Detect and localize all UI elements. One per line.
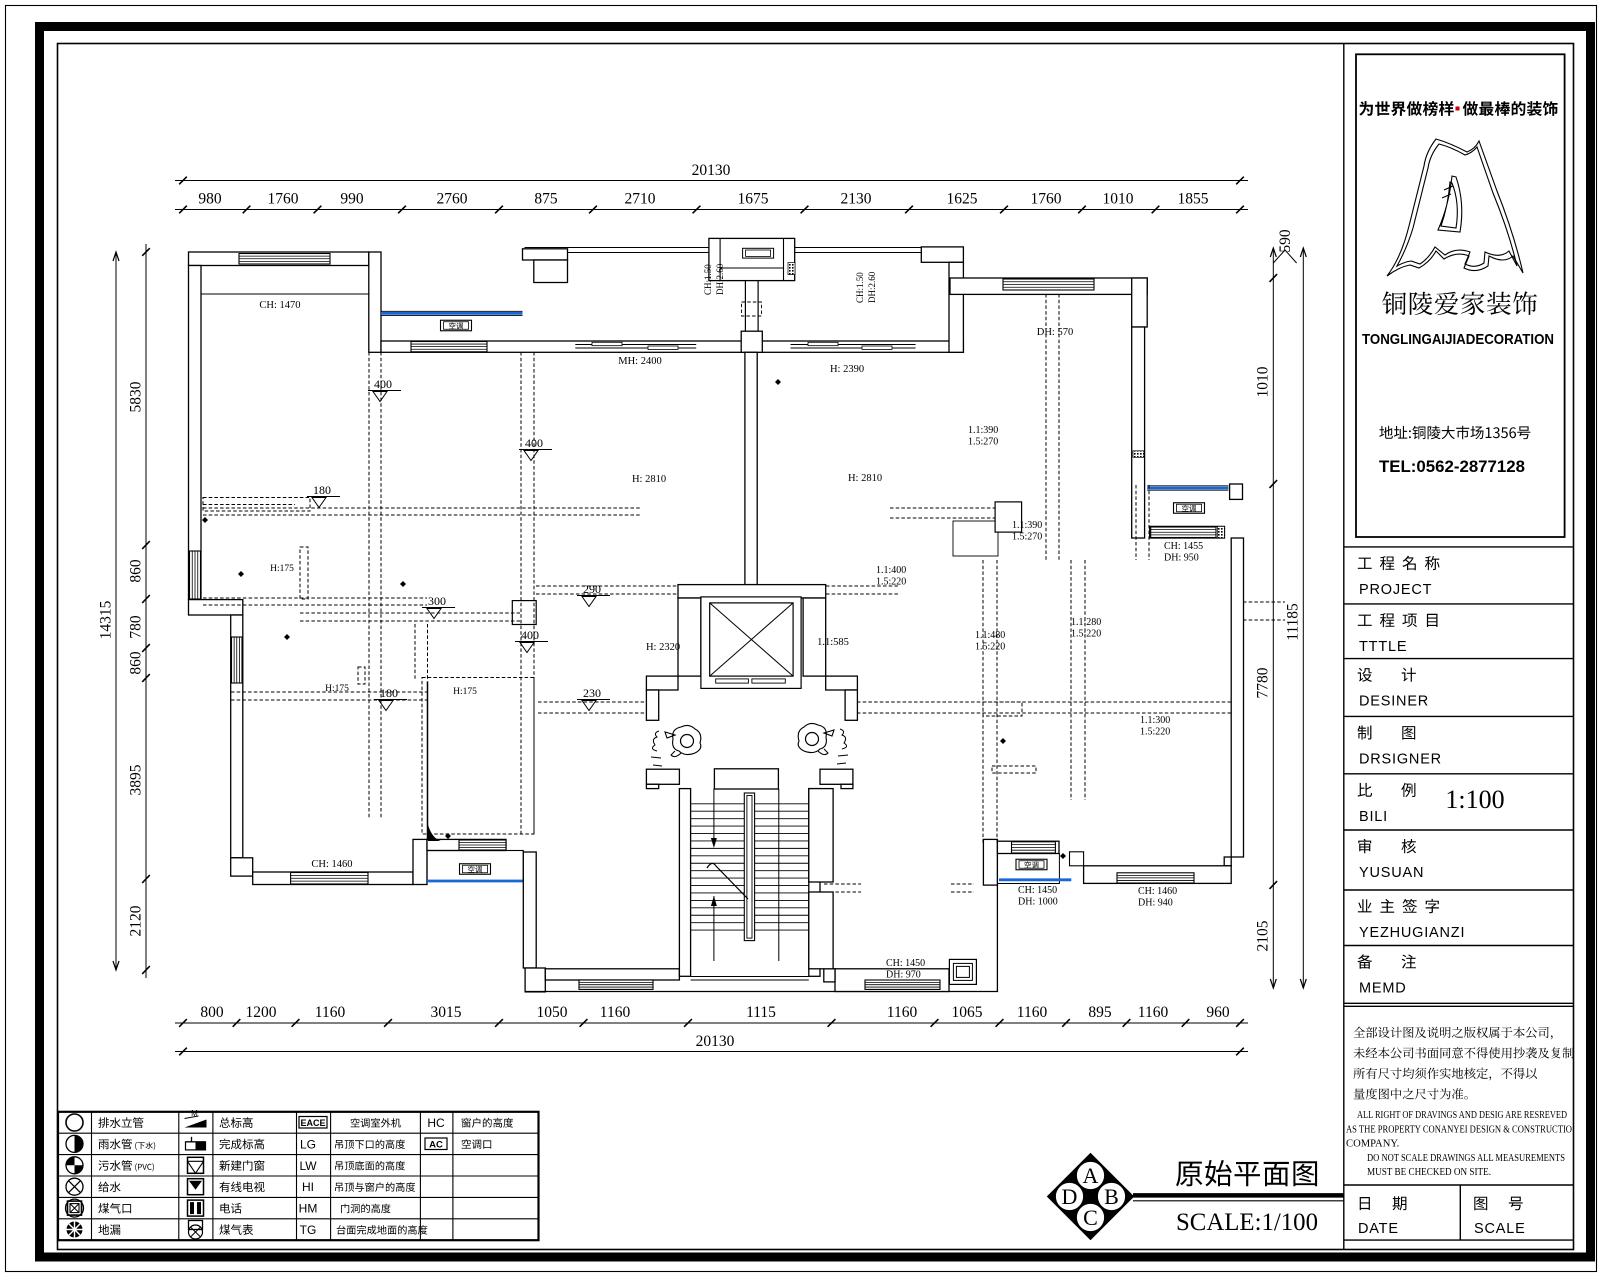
svg-text:MUST BE CHECKED ON SITE.: MUST BE CHECKED ON SITE. <box>1367 1167 1491 1178</box>
svg-text:1.5:270: 1.5:270 <box>968 437 998 448</box>
svg-text:3015: 3015 <box>431 1004 462 1021</box>
svg-text:1.1:400: 1.1:400 <box>876 565 906 576</box>
svg-text:1160: 1160 <box>887 1004 918 1021</box>
svg-text:1625: 1625 <box>947 191 978 208</box>
svg-text:HI: HI <box>302 1180 314 1194</box>
svg-text:780: 780 <box>128 615 145 639</box>
svg-text:CH:1.50: CH:1.50 <box>703 264 713 295</box>
svg-text:2120: 2120 <box>128 905 145 936</box>
svg-text:AS THE PROPERTY CONANYEI DESIG: AS THE PROPERTY CONANYEI DESIGN & CONSTR… <box>1346 1124 1572 1135</box>
svg-text:1160: 1160 <box>1017 1004 1048 1021</box>
svg-text:CH: 1450: CH: 1450 <box>1018 885 1057 896</box>
svg-text:ALL RIGHT OF DRAVINGS AND DESI: ALL RIGHT OF DRAVINGS AND DESIG ARE RESR… <box>1357 1110 1567 1121</box>
svg-text:C: C <box>1083 1205 1098 1230</box>
svg-text:TG: TG <box>300 1223 317 1237</box>
svg-text:2760: 2760 <box>437 191 468 208</box>
svg-text:875: 875 <box>534 191 558 208</box>
svg-text:YEZHUGIANZI: YEZHUGIANZI <box>1359 925 1465 941</box>
svg-text:1160: 1160 <box>1138 1004 1169 1021</box>
svg-text:COMPANY.: COMPANY. <box>1346 1139 1399 1150</box>
svg-text:PROJECT: PROJECT <box>1359 582 1432 598</box>
svg-text:5830: 5830 <box>128 381 145 412</box>
svg-text:1160: 1160 <box>600 1004 631 1021</box>
svg-text:LG: LG <box>300 1137 316 1151</box>
svg-text:800: 800 <box>200 1004 224 1021</box>
svg-text:2710: 2710 <box>625 191 656 208</box>
svg-text:1010: 1010 <box>1103 191 1134 208</box>
svg-text:14315: 14315 <box>98 600 115 639</box>
svg-text:1855: 1855 <box>1178 191 1209 208</box>
svg-text:SCALE: SCALE <box>1474 1221 1526 1237</box>
svg-text:960: 960 <box>1206 1004 1230 1021</box>
svg-text:3895: 3895 <box>128 764 145 795</box>
svg-text:H: 2320: H: 2320 <box>646 642 680 653</box>
svg-text:7780: 7780 <box>1255 667 1272 698</box>
svg-text:1065: 1065 <box>952 1004 983 1021</box>
svg-text:1.1:480: 1.1:480 <box>975 630 1005 641</box>
svg-text:DH: 970: DH: 970 <box>886 970 921 981</box>
svg-text:1675: 1675 <box>738 191 769 208</box>
svg-text:DH:2.60: DH:2.60 <box>715 263 725 295</box>
svg-text:180: 180 <box>313 483 331 497</box>
svg-text:1760: 1760 <box>1031 191 1062 208</box>
svg-text:300: 300 <box>428 594 446 608</box>
svg-text:400: 400 <box>374 377 392 391</box>
svg-text:590: 590 <box>1277 229 1294 253</box>
svg-text:1.1:390: 1.1:390 <box>968 425 998 436</box>
svg-text:DH: 950: DH: 950 <box>1164 553 1199 564</box>
svg-text:1.5:220: 1.5:220 <box>1071 629 1101 640</box>
svg-text:DRSIGNER: DRSIGNER <box>1359 751 1442 767</box>
svg-text:1.5:220: 1.5:220 <box>975 642 1005 653</box>
svg-text:980: 980 <box>198 191 222 208</box>
svg-text:DH:2.60: DH:2.60 <box>867 271 877 303</box>
svg-text:CH: 1455: CH: 1455 <box>1164 541 1203 552</box>
svg-text:EACE: EACE <box>300 1118 325 1128</box>
svg-text:1115: 1115 <box>746 1004 776 1021</box>
svg-text:20130: 20130 <box>692 162 731 179</box>
svg-text:B: B <box>1104 1184 1119 1209</box>
svg-text:1200: 1200 <box>246 1004 277 1021</box>
svg-text:TEL:0562-2877128: TEL:0562-2877128 <box>1379 457 1525 476</box>
svg-text:H:175: H:175 <box>270 564 294 574</box>
svg-text:1.5:220: 1.5:220 <box>1140 727 1170 738</box>
svg-text:CH: 1450: CH: 1450 <box>886 958 925 969</box>
svg-text:YUSUAN: YUSUAN <box>1359 865 1424 881</box>
svg-text:CH: 1470: CH: 1470 <box>259 300 300 311</box>
svg-text:1.5:220: 1.5:220 <box>876 577 906 588</box>
svg-text:20130: 20130 <box>696 1033 735 1050</box>
svg-text:860: 860 <box>128 651 145 675</box>
svg-text:HC: HC <box>427 1116 445 1130</box>
svg-text:1.1:280: 1.1:280 <box>1071 617 1101 628</box>
svg-text:SCALE:1/100: SCALE:1/100 <box>1176 1209 1318 1236</box>
svg-text:H:175: H:175 <box>325 684 349 694</box>
svg-text:860: 860 <box>128 559 145 583</box>
svg-text:1050: 1050 <box>537 1004 568 1021</box>
svg-text:D: D <box>1062 1184 1078 1209</box>
svg-text:400: 400 <box>525 436 543 450</box>
svg-text:BILI: BILI <box>1359 809 1388 825</box>
svg-text:DESINER: DESINER <box>1359 694 1429 710</box>
svg-text:230: 230 <box>583 686 601 700</box>
svg-text:H: 2810: H: 2810 <box>632 474 666 485</box>
svg-text:895: 895 <box>1088 1004 1112 1021</box>
svg-text:180: 180 <box>380 686 398 700</box>
svg-text:CH: 1460: CH: 1460 <box>1138 886 1177 897</box>
svg-text:H: 2810: H: 2810 <box>848 473 882 484</box>
svg-text:1.5:270: 1.5:270 <box>1012 532 1042 543</box>
svg-text:1010: 1010 <box>1255 366 1272 397</box>
svg-text:1.1:585: 1.1:585 <box>817 637 849 648</box>
svg-text:1:100: 1:100 <box>1445 785 1504 814</box>
svg-text:CH: 1460: CH: 1460 <box>311 859 352 870</box>
svg-text:DH: 570: DH: 570 <box>1037 327 1073 338</box>
svg-text:AC: AC <box>429 1140 443 1151</box>
svg-text:2130: 2130 <box>841 191 872 208</box>
svg-text:MEMD: MEMD <box>1359 981 1407 997</box>
svg-text:1160: 1160 <box>315 1004 346 1021</box>
svg-text:TTTLE: TTTLE <box>1359 639 1407 655</box>
svg-text:CH:1.50: CH:1.50 <box>855 272 865 303</box>
svg-text:2105: 2105 <box>1255 920 1272 951</box>
svg-text:DATE: DATE <box>1358 1221 1399 1237</box>
svg-text:M: M <box>191 1109 198 1118</box>
svg-text:DH: 1000: DH: 1000 <box>1018 897 1058 908</box>
svg-text:1.1:390: 1.1:390 <box>1012 520 1042 531</box>
svg-text:DH: 940: DH: 940 <box>1138 898 1173 909</box>
svg-text:LW: LW <box>299 1159 317 1173</box>
svg-text:TONGLINGAIJIADECORATION: TONGLINGAIJIADECORATION <box>1362 331 1554 348</box>
svg-text:H: 2390: H: 2390 <box>830 364 864 375</box>
svg-text:990: 990 <box>340 191 364 208</box>
svg-text:400: 400 <box>521 628 539 642</box>
svg-text:1760: 1760 <box>268 191 299 208</box>
svg-text:HM: HM <box>299 1202 318 1216</box>
svg-text:MH: 2400: MH: 2400 <box>618 356 661 367</box>
svg-text:11185: 11185 <box>1285 603 1302 641</box>
svg-text:A: A <box>1083 1163 1099 1188</box>
svg-text:290: 290 <box>583 582 601 596</box>
svg-text:1.1:300: 1.1:300 <box>1140 715 1170 726</box>
svg-text:DO NOT SCALE DRAWINGS ALL MEAS: DO NOT SCALE DRAWINGS ALL MEASUREMENTS <box>1367 1153 1565 1164</box>
svg-text:H:175: H:175 <box>453 687 477 697</box>
